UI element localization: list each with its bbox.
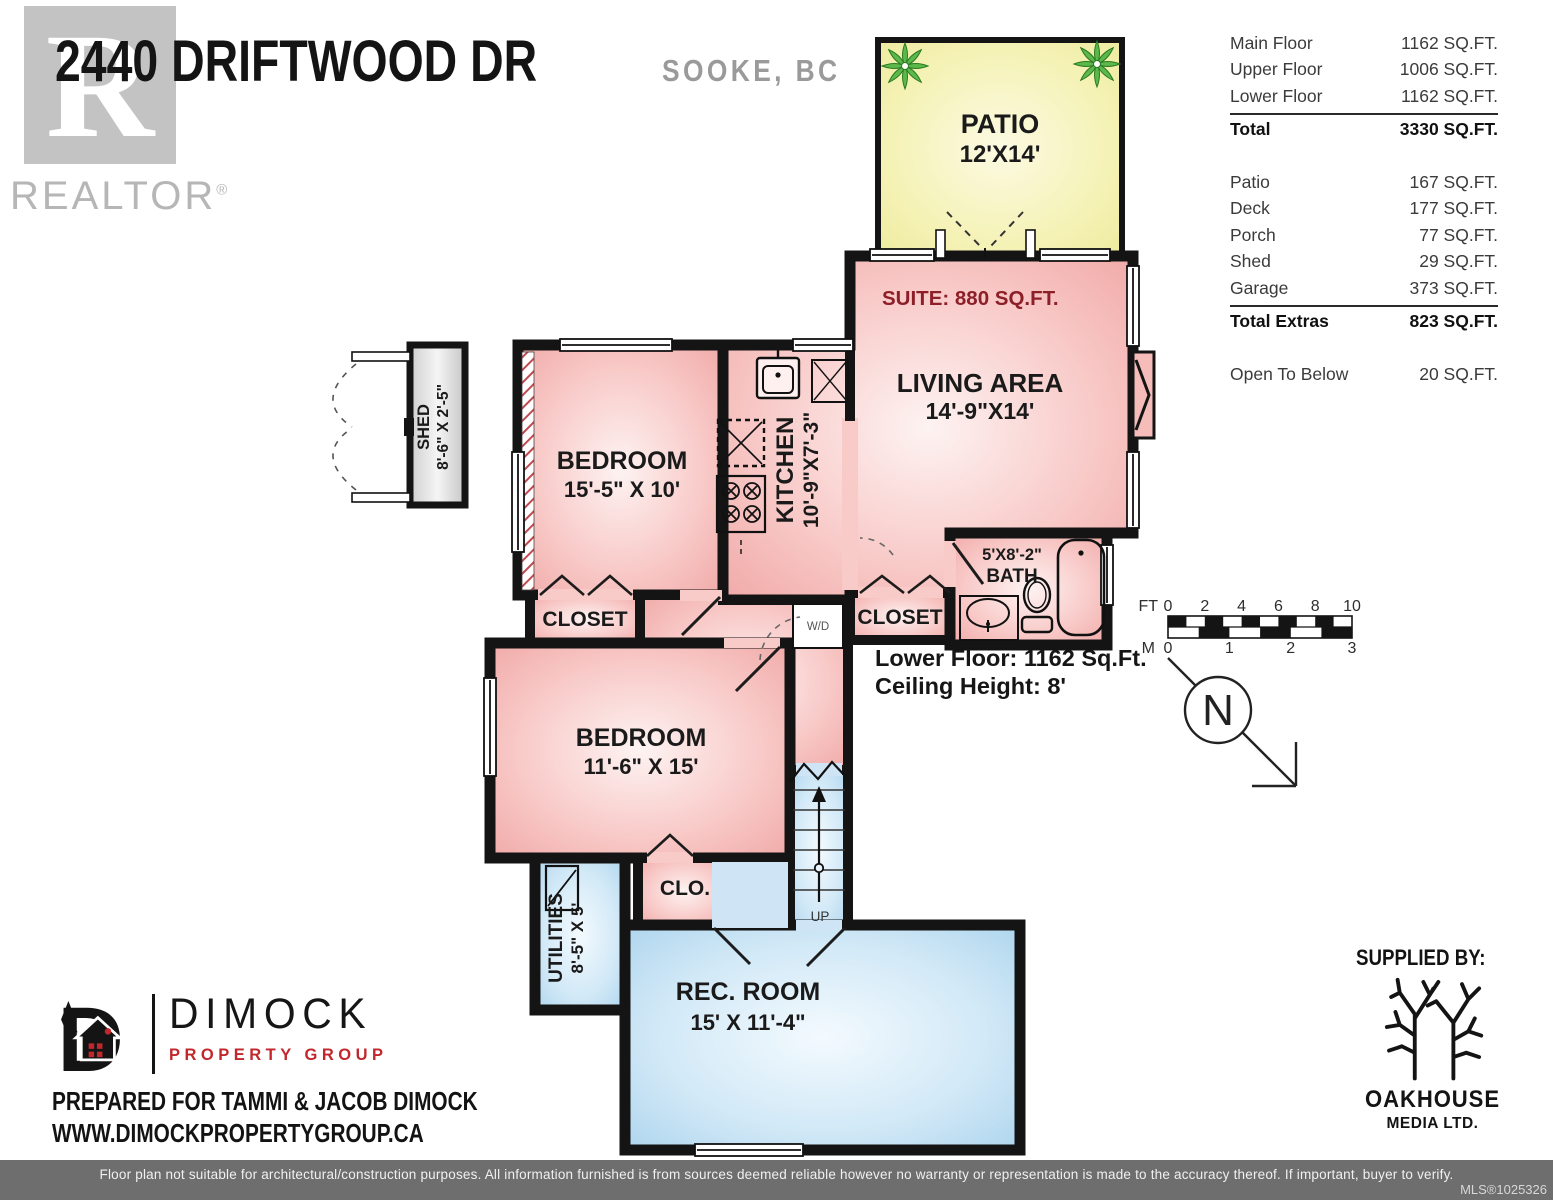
- svg-text:3: 3: [1348, 640, 1357, 657]
- row-label: Deck: [1230, 198, 1270, 219]
- disclaimer-text: Floor plan not suitable for architectura…: [0, 1160, 1553, 1182]
- svg-text:15'-5" X 10': 15'-5" X 10': [564, 477, 680, 502]
- svg-text:6: 6: [1274, 598, 1283, 615]
- mls-number: MLS®1025326: [1460, 1182, 1547, 1197]
- svg-text:Lower Floor: 1162 Sq.Ft.: Lower Floor: 1162 Sq.Ft.: [875, 645, 1147, 671]
- svg-text:8'-5" X 5': 8'-5" X 5': [568, 903, 587, 974]
- dimock-name: DIMOCK: [169, 990, 372, 1039]
- washer-dryer: W/D: [793, 604, 843, 648]
- svg-text:UP: UP: [811, 909, 830, 924]
- title-block: 2440 DRIFTWOOD DR SOOKE, BC: [55, 28, 872, 95]
- page-subtitle: SOOKE, BC: [662, 53, 840, 89]
- logo-divider: [152, 994, 155, 1074]
- svg-text:12'X14': 12'X14': [960, 141, 1041, 168]
- shed-doors: [333, 352, 414, 502]
- area-summary-table: Main Floor 1162 SQ.FT. Upper Floor 1006 …: [1230, 30, 1498, 388]
- oakhouse-name: OAKHOUSE: [1347, 1086, 1517, 1114]
- svg-text:4: 4: [1237, 598, 1246, 615]
- table-row: Patio 167 SQ.FT.: [1230, 169, 1498, 196]
- row-label: Open To Below: [1230, 364, 1348, 385]
- svg-text:PATIO: PATIO: [961, 109, 1040, 139]
- svg-text:CLOSET: CLOSET: [542, 608, 627, 631]
- svg-text:FT: FT: [1138, 598, 1158, 615]
- svg-text:5'X8'-2": 5'X8'-2": [982, 546, 1042, 564]
- svg-text:BEDROOM: BEDROOM: [557, 447, 688, 475]
- row-value: 823 SQ.FT.: [1409, 311, 1498, 332]
- svg-text:11'-6" X 15': 11'-6" X 15': [583, 754, 698, 779]
- svg-text:BATH: BATH: [986, 566, 1037, 587]
- table-row: Deck 177 SQ.FT.: [1230, 196, 1498, 223]
- svg-text:1: 1: [1225, 640, 1234, 657]
- svg-text:UTILITIES: UTILITIES: [546, 893, 567, 983]
- table-row: Porch 77 SQ.FT.: [1230, 222, 1498, 249]
- row-label: Patio: [1230, 172, 1270, 193]
- floor-notes: Lower Floor: 1162 Sq.Ft. Ceiling Height:…: [875, 645, 1147, 699]
- svg-text:10'-9"X7'-3": 10'-9"X7'-3": [800, 412, 823, 528]
- svg-text:SHED: SHED: [415, 404, 433, 450]
- row-label: Lower Floor: [1230, 86, 1322, 107]
- website-link[interactable]: WWW.DIMOCKPROPERTYGROUP.CA: [52, 1118, 517, 1149]
- row-label: Porch: [1230, 225, 1276, 246]
- row-value: 373 SQ.FT.: [1409, 278, 1498, 299]
- supplied-by-label: SUPPLIED BY:: [1340, 945, 1525, 971]
- svg-text:10: 10: [1343, 598, 1361, 615]
- floorplan-sheet: R REALTOR® 2440 DRIFTWOOD DR SOOKE, BC M…: [0, 0, 1553, 1200]
- row-label: Shed: [1230, 251, 1271, 272]
- north-arrow: N: [1168, 658, 1296, 786]
- row-value: 167 SQ.FT.: [1409, 172, 1498, 193]
- row-label: Main Floor: [1230, 33, 1313, 54]
- table-row-total-extras: Total Extras 823 SQ.FT.: [1230, 309, 1498, 336]
- row-label: Garage: [1230, 278, 1288, 299]
- svg-text:8: 8: [1311, 598, 1320, 615]
- svg-text:W/D: W/D: [807, 621, 829, 633]
- table-row-open-to-below: Open To Below 20 SQ.FT.: [1230, 361, 1498, 388]
- table-divider: [1230, 305, 1498, 307]
- svg-text:M: M: [1142, 640, 1155, 657]
- svg-text:N: N: [1202, 686, 1234, 735]
- room-recroom: [625, 925, 1020, 1150]
- svg-text:BEDROOM: BEDROOM: [576, 724, 707, 752]
- row-label: Total Extras: [1230, 311, 1329, 332]
- oakhouse-subtitle: MEDIA LTD.: [1340, 1115, 1525, 1133]
- svg-text:2: 2: [1200, 598, 1209, 615]
- footer-bar: Floor plan not suitable for architectura…: [0, 1160, 1553, 1200]
- svg-text:15' X 11'-4": 15' X 11'-4": [690, 1010, 805, 1035]
- plant-icon: [1074, 41, 1120, 87]
- row-value: 1162 SQ.FT.: [1401, 33, 1498, 54]
- fireplace: [1133, 352, 1154, 438]
- oakhouse-logo-icon: [1374, 971, 1492, 1083]
- svg-text:14'-9"X14': 14'-9"X14': [926, 398, 1035, 424]
- oakhouse-logo-block: SUPPLIED BY: OAKHOUSE MEDIA LTD.: [1340, 945, 1525, 1133]
- row-value: 20 SQ.FT.: [1419, 364, 1498, 385]
- row-label: Total: [1230, 119, 1271, 140]
- dimock-logo-block: D DIMOCK PROPERTY GROUP: [50, 990, 388, 1082]
- row-label: Upper Floor: [1230, 59, 1322, 80]
- table-row: Garage 373 SQ.FT.: [1230, 275, 1498, 302]
- row-value: 77 SQ.FT.: [1419, 225, 1498, 246]
- table-row: Upper Floor 1006 SQ.FT.: [1230, 57, 1498, 84]
- row-value: 1006 SQ.FT.: [1400, 59, 1498, 80]
- svg-text:8'-6" X 2'-5": 8'-6" X 2'-5": [435, 384, 452, 470]
- table-divider: [1230, 113, 1498, 115]
- plant-icon: [882, 43, 928, 89]
- scale-bar: FT 0 2 4 6 8 10 M 0 1 2 3: [1138, 598, 1361, 657]
- table-row: Main Floor 1162 SQ.FT.: [1230, 30, 1498, 57]
- svg-text:REC. ROOM: REC. ROOM: [676, 978, 820, 1006]
- row-value: 177 SQ.FT.: [1409, 198, 1498, 219]
- svg-text:KITCHEN: KITCHEN: [772, 417, 799, 524]
- row-value: 3330 SQ.FT.: [1400, 119, 1498, 140]
- svg-text:Ceiling Height: 8': Ceiling Height: 8': [875, 673, 1066, 699]
- prepared-for-text: PREPARED FOR TAMMI & JACOB DIMOCK: [52, 1086, 584, 1117]
- row-value: 1162 SQ.FT.: [1401, 86, 1498, 107]
- table-row-total: Total 3330 SQ.FT.: [1230, 117, 1498, 144]
- svg-text:0: 0: [1164, 598, 1173, 615]
- svg-text:0: 0: [1164, 640, 1173, 657]
- svg-text:CLOSET: CLOSET: [857, 606, 942, 629]
- svg-text:2: 2: [1286, 640, 1295, 657]
- dimock-logo-icon: D: [50, 990, 142, 1082]
- page-title: 2440 DRIFTWOOD DR: [55, 28, 537, 95]
- row-value: 29 SQ.FT.: [1419, 251, 1498, 272]
- table-row: Lower Floor 1162 SQ.FT.: [1230, 83, 1498, 110]
- table-row: Shed 29 SQ.FT.: [1230, 249, 1498, 276]
- svg-text:CLO.: CLO.: [660, 877, 710, 900]
- svg-text:SUITE: 880 SQ.FT.: SUITE: 880 SQ.FT.: [882, 287, 1059, 310]
- svg-text:LIVING AREA: LIVING AREA: [897, 368, 1064, 398]
- dimock-subtitle: PROPERTY GROUP: [169, 1046, 388, 1065]
